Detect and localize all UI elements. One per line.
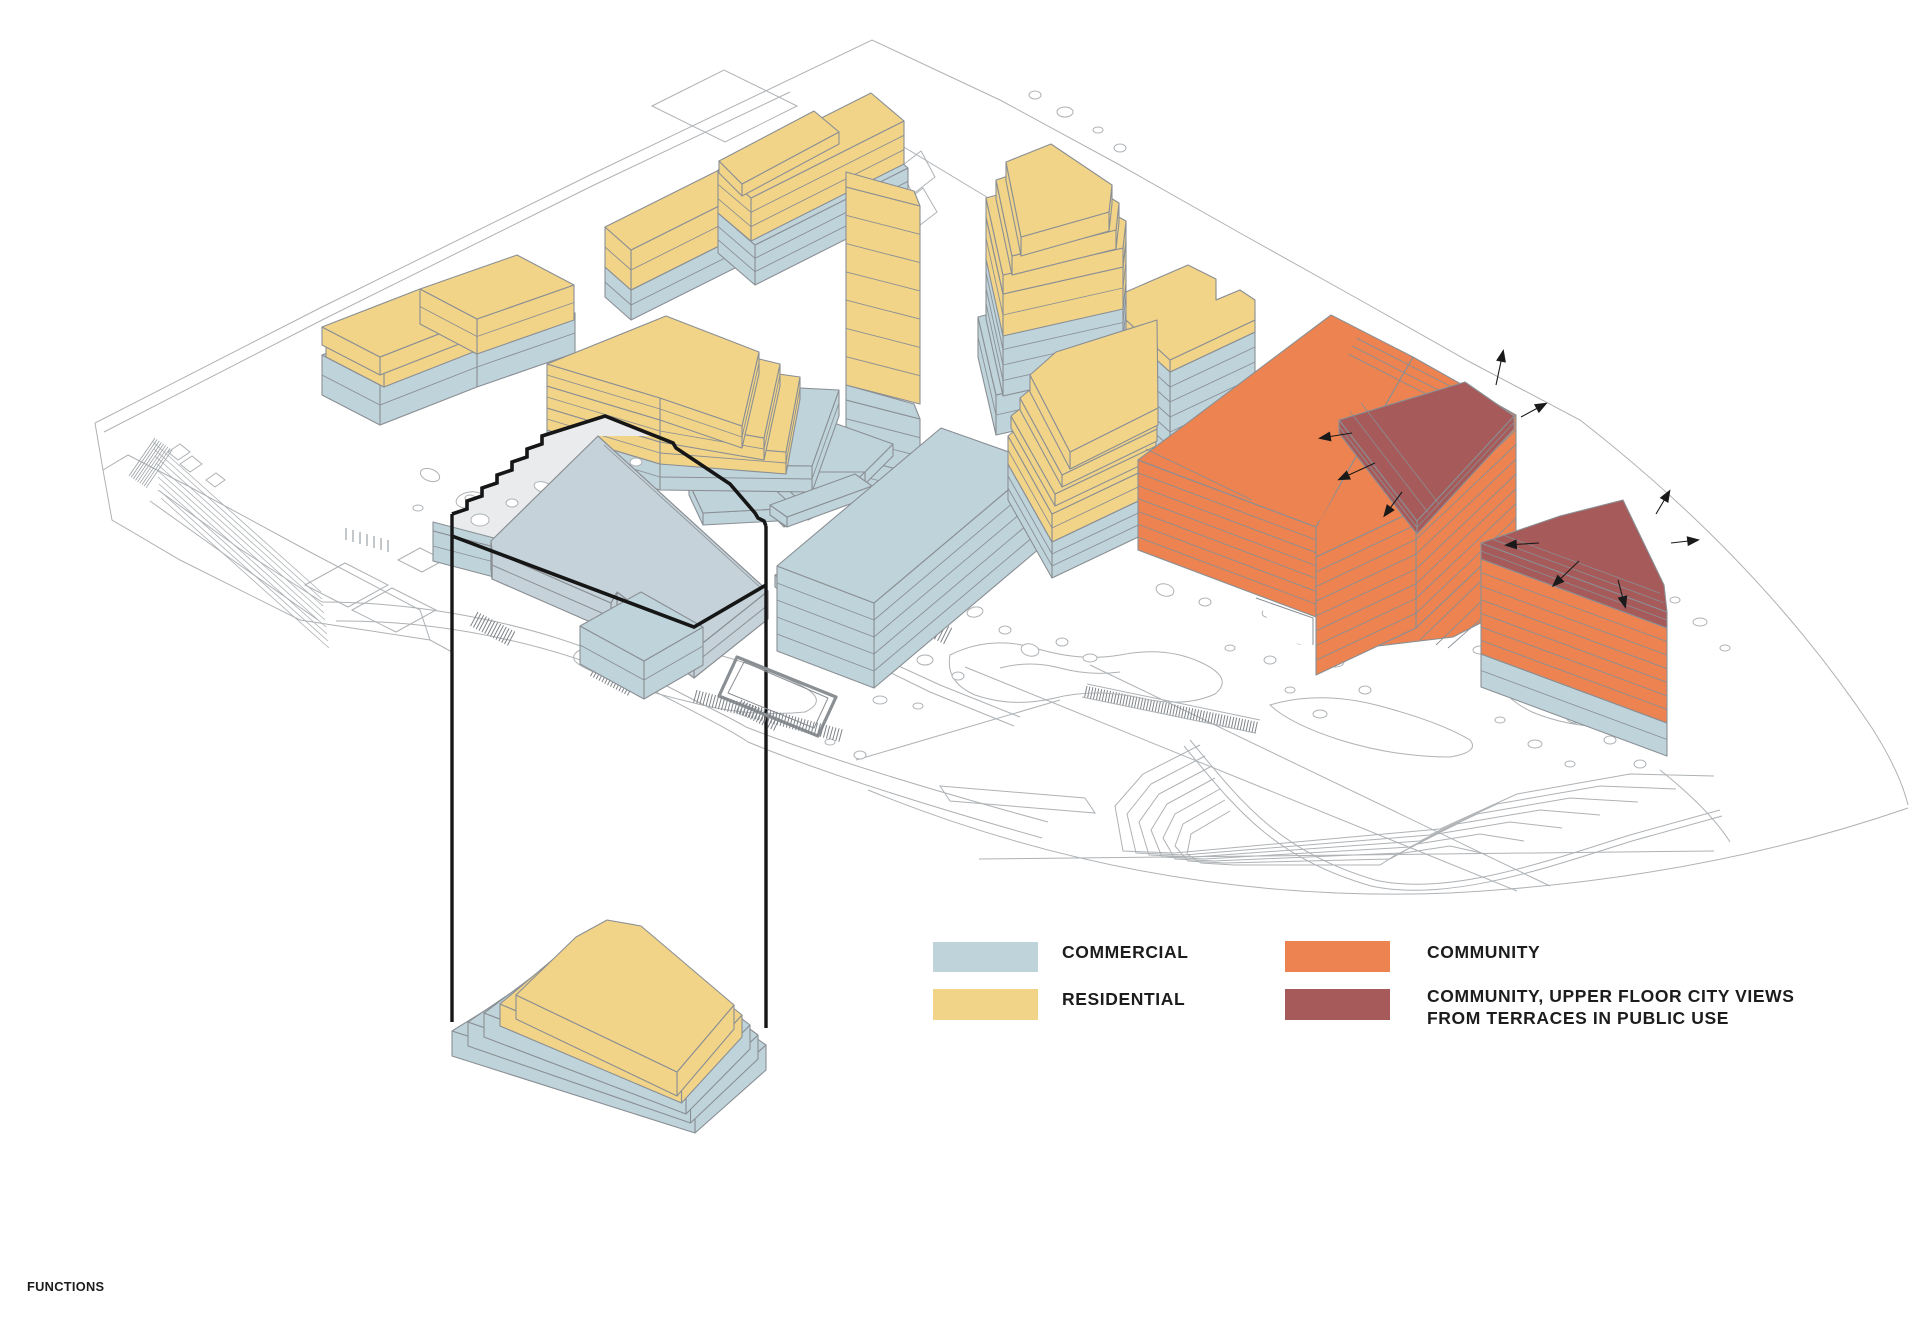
svg-text:COMMUNITY, UPPER FLOOR CITY VI: COMMUNITY, UPPER FLOOR CITY VIEWS [1427, 986, 1795, 1006]
svg-text:COMMERCIAL: COMMERCIAL [1062, 942, 1189, 962]
svg-text:RESIDENTIAL: RESIDENTIAL [1062, 989, 1185, 1009]
svg-text:COMMUNITY: COMMUNITY [1427, 942, 1540, 962]
svg-text:FROM TERRACES IN PUBLIC USE: FROM TERRACES IN PUBLIC USE [1427, 1008, 1729, 1028]
svg-text:FUNCTIONS: FUNCTIONS [27, 1279, 105, 1294]
